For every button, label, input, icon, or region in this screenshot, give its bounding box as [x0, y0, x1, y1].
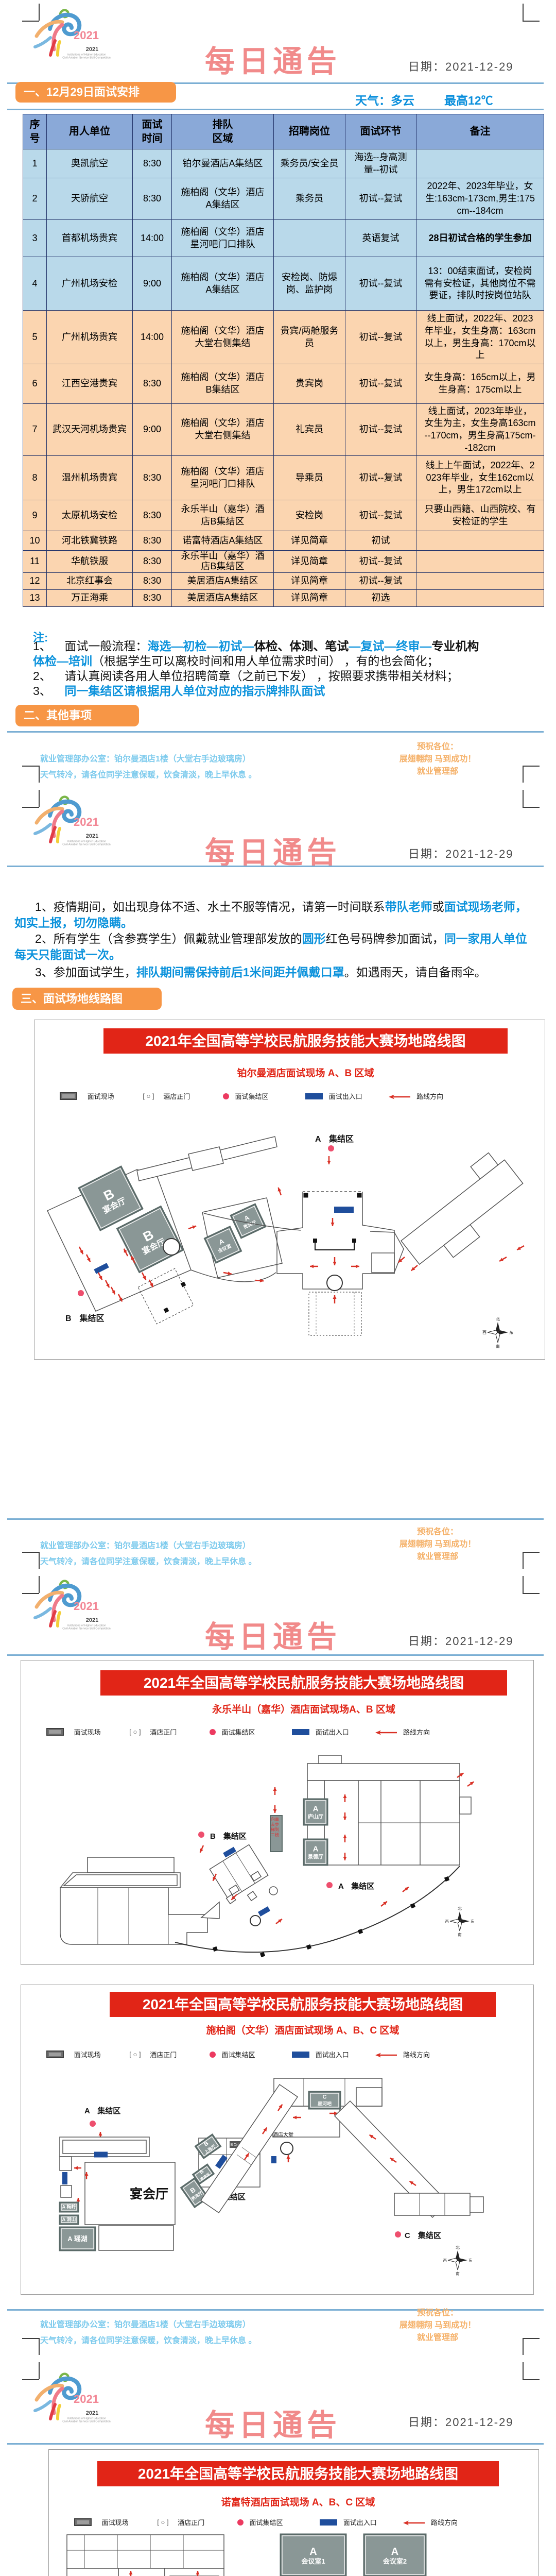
svg-text:2021: 2021	[86, 2410, 98, 2416]
svg-text:A: A	[309, 2546, 317, 2557]
svg-text:2021: 2021	[74, 2393, 99, 2405]
svg-text:Civil Aviation Service Skill C: Civil Aviation Service Skill Competition	[62, 843, 110, 846]
svg-text:A 集结区: A 集结区	[315, 1134, 354, 1144]
svg-text:2021: 2021	[86, 46, 98, 53]
svg-text:Civil Aviation Service Skill C: Civil Aviation Service Skill Competition	[62, 2420, 110, 2423]
svg-text:庐山厅: 庐山厅	[308, 1814, 323, 1820]
svg-text:A 集结区: A 集结区	[84, 2106, 120, 2115]
svg-text:A: A	[313, 1845, 319, 1854]
svg-text:B 集结区: B 集结区	[210, 1832, 247, 1841]
svg-text:会议室1: 会议室1	[301, 2557, 325, 2565]
svg-text:A 梅岭: A 梅岭	[62, 2204, 76, 2210]
svg-text:A: A	[313, 1805, 319, 1814]
svg-text:Institutions of Higher Educati: Institutions of Higher Education	[67, 840, 106, 843]
svg-text:A: A	[391, 2546, 398, 2557]
svg-text:Institutions of Higher Educati: Institutions of Higher Education	[67, 1624, 106, 1628]
svg-text:星河吧: 星河吧	[318, 2101, 332, 2107]
svg-text:北: 北	[458, 1906, 462, 1911]
svg-text:南: 南	[496, 1344, 500, 1349]
svg-text:东: 东	[471, 1919, 475, 1924]
svg-text:北: 北	[456, 2245, 460, 2250]
svg-text:景德厅: 景德厅	[308, 1854, 323, 1860]
svg-text:2021: 2021	[74, 1600, 99, 1613]
svg-text:C: C	[323, 2094, 327, 2100]
svg-text:向南: 向南	[271, 1817, 279, 1822]
svg-text:酒店大堂: 酒店大堂	[273, 2131, 293, 2138]
svg-text:Institutions of Higher Educati: Institutions of Higher Education	[67, 54, 106, 57]
svg-text:北: 北	[496, 1317, 500, 1321]
svg-text:B 集结区: B 集结区	[65, 1313, 105, 1323]
svg-text:2021: 2021	[74, 29, 99, 42]
svg-text:Civil Aviation Service Skill C: Civil Aviation Service Skill Competition	[62, 57, 110, 59]
svg-text:南: 南	[456, 2271, 460, 2276]
svg-text:A 集结区: A 集结区	[338, 1882, 374, 1891]
svg-text:会议室2: 会议室2	[383, 2557, 407, 2565]
svg-text:Institutions of Higher Educati: Institutions of Higher Education	[67, 2417, 106, 2420]
svg-text:A 洞山: A 洞山	[62, 2216, 76, 2222]
svg-text:西: 西	[443, 2258, 447, 2263]
svg-text:Civil Aviation Service Skill C: Civil Aviation Service Skill Competition	[62, 1628, 110, 1630]
svg-text:南: 南	[458, 1932, 462, 1937]
svg-text:2021: 2021	[74, 816, 99, 828]
svg-text:去步: 去步	[271, 1822, 279, 1827]
svg-text:梯到: 梯到	[271, 1827, 279, 1832]
svg-text:C 集结区: C 集结区	[405, 2231, 441, 2240]
svg-text:A 瑶湖: A 瑶湖	[67, 2235, 88, 2243]
svg-text:东: 东	[468, 2258, 473, 2263]
svg-text:西: 西	[482, 1330, 486, 1335]
svg-text:西: 西	[445, 1919, 449, 1924]
svg-text:二楼: 二楼	[271, 1832, 279, 1837]
svg-text:东: 东	[509, 1330, 513, 1335]
svg-text:宴会厅: 宴会厅	[130, 2187, 168, 2201]
svg-text:2021: 2021	[86, 1617, 98, 1623]
svg-text:2021: 2021	[86, 833, 98, 839]
